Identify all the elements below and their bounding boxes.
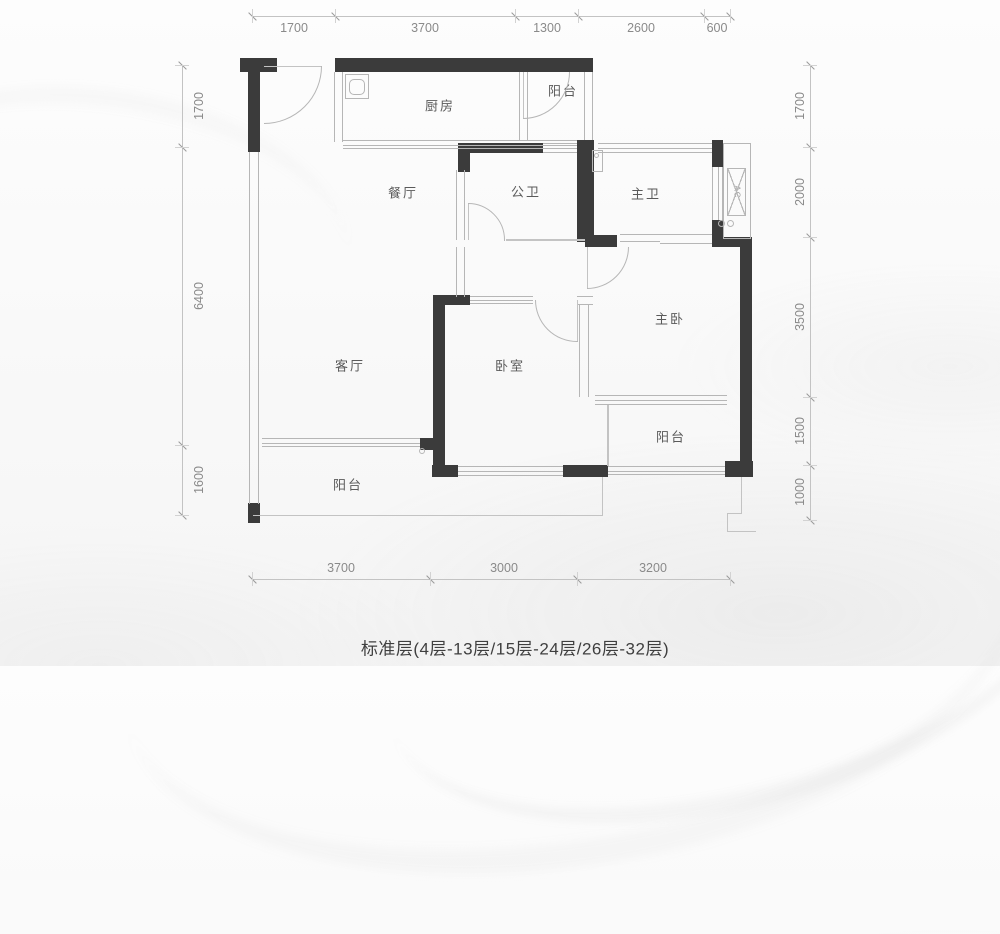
room-label-kitchen: 厨房 bbox=[425, 96, 455, 115]
kitchen-sink-basin bbox=[349, 79, 365, 95]
thin-wall bbox=[579, 305, 589, 397]
dim-extension bbox=[252, 572, 253, 586]
room-label-master-bath: 主卫 bbox=[631, 184, 661, 203]
dimension-line bbox=[810, 65, 811, 521]
outline-line bbox=[506, 239, 585, 241]
outline-line bbox=[607, 405, 609, 466]
door-arc-circle bbox=[535, 300, 578, 342]
dim-extension bbox=[730, 9, 731, 23]
door-arc-circle bbox=[523, 72, 570, 119]
wall-segment bbox=[335, 58, 593, 72]
thin-wall bbox=[584, 72, 593, 140]
window bbox=[595, 395, 727, 405]
dim-extension bbox=[803, 65, 817, 66]
room-label-balcony-right: 阳台 bbox=[656, 427, 686, 446]
room-label-bedroom: 卧室 bbox=[495, 356, 525, 375]
outline-line bbox=[741, 477, 742, 514]
door-arc-circle bbox=[264, 66, 322, 124]
dim-extension bbox=[803, 465, 817, 466]
fixture-circle bbox=[419, 448, 425, 454]
dimension-line bbox=[252, 579, 731, 580]
dim-extension bbox=[175, 147, 189, 148]
room-label-balcony-left: 阳台 bbox=[333, 475, 363, 494]
thin-wall bbox=[334, 72, 343, 142]
dim-right-2000: 2000 bbox=[793, 178, 807, 206]
dim-left-1700: 1700 bbox=[192, 92, 206, 120]
room-label-public-bath: 公卫 bbox=[511, 182, 541, 201]
dim-extension bbox=[252, 9, 253, 23]
thin-wall bbox=[456, 247, 465, 297]
dim-top-600: 600 bbox=[707, 21, 728, 35]
dim-right-3500: 3500 bbox=[793, 303, 807, 331]
outline-line bbox=[727, 513, 742, 514]
wall-segment bbox=[725, 461, 753, 477]
dim-bottom-3000: 3000 bbox=[490, 561, 518, 575]
dim-extension bbox=[175, 515, 189, 516]
door-swing-arc bbox=[468, 203, 506, 241]
thin-wall bbox=[620, 234, 660, 242]
dim-right-1700: 1700 bbox=[793, 92, 807, 120]
room-label-dining: 餐厅 bbox=[388, 183, 418, 202]
dim-extension bbox=[730, 572, 731, 586]
dimension-line bbox=[182, 65, 183, 516]
window bbox=[343, 140, 577, 149]
dim-top-1300: 1300 bbox=[533, 21, 561, 35]
window bbox=[543, 143, 577, 153]
dim-right-1500: 1500 bbox=[793, 417, 807, 445]
door-swing-arc bbox=[535, 300, 578, 343]
wall-segment bbox=[585, 235, 617, 247]
thin-wall bbox=[660, 234, 712, 244]
dim-bottom-3700: 3700 bbox=[327, 561, 355, 575]
room-label-living: 客厅 bbox=[335, 356, 365, 375]
thin-wall bbox=[249, 440, 259, 504]
window bbox=[458, 466, 563, 476]
dim-extension bbox=[430, 572, 431, 586]
outline-line bbox=[727, 513, 728, 532]
fixture-circle bbox=[594, 153, 599, 158]
dim-extension bbox=[577, 572, 578, 586]
wall-segment bbox=[712, 140, 723, 167]
floor-plan: 厨房 阳台 餐厅 公卫 主卫 主卧 客厅 卧室 阳台 阳台 AC 1700 37… bbox=[0, 0, 1000, 666]
dim-extension bbox=[704, 9, 705, 23]
dim-left-6400: 6400 bbox=[192, 282, 206, 310]
dim-extension bbox=[578, 9, 579, 23]
outline-line bbox=[602, 477, 603, 516]
thin-wall bbox=[456, 170, 465, 240]
fixture-circle bbox=[718, 220, 725, 227]
wall-segment bbox=[432, 465, 458, 477]
door-swing-arc bbox=[587, 247, 630, 290]
door-arc-circle bbox=[468, 203, 505, 241]
window bbox=[598, 143, 712, 153]
dim-top-3700: 3700 bbox=[411, 21, 439, 35]
dim-extension bbox=[175, 65, 189, 66]
window bbox=[712, 167, 723, 220]
dim-top-2600: 2600 bbox=[627, 21, 655, 35]
dim-extension bbox=[515, 9, 516, 23]
dim-extension bbox=[803, 237, 817, 238]
thin-wall bbox=[249, 152, 259, 440]
dim-extension bbox=[803, 147, 817, 148]
wall-segment bbox=[433, 295, 445, 477]
window bbox=[608, 466, 725, 475]
dim-left-1600: 1600 bbox=[192, 466, 206, 494]
wall-segment bbox=[740, 247, 752, 463]
dimension-line bbox=[252, 16, 731, 17]
outline-line bbox=[253, 515, 603, 516]
outline-line bbox=[727, 531, 756, 532]
thin-wall bbox=[577, 296, 593, 305]
dim-bottom-3200: 3200 bbox=[639, 561, 667, 575]
door-swing-arc bbox=[523, 72, 571, 120]
wall-segment bbox=[248, 503, 260, 523]
dim-extension bbox=[803, 397, 817, 398]
dim-right-1000: 1000 bbox=[793, 478, 807, 506]
dim-top-1700: 1700 bbox=[280, 21, 308, 35]
dim-extension bbox=[175, 445, 189, 446]
wall-segment bbox=[248, 70, 260, 152]
dim-extension bbox=[335, 9, 336, 23]
door-arc-circle bbox=[587, 247, 629, 289]
window bbox=[470, 296, 533, 304]
ac-unit bbox=[727, 168, 746, 216]
fixture-circle bbox=[727, 220, 734, 227]
floor-plan-caption: 标准层(4层-13层/15层-24层/26层-32层) bbox=[361, 635, 669, 660]
room-label-master-bedroom: 主卧 bbox=[655, 309, 685, 328]
window bbox=[262, 438, 420, 447]
wall-segment bbox=[458, 150, 470, 172]
wall-segment bbox=[563, 465, 608, 477]
door-swing-arc bbox=[264, 66, 323, 125]
dim-extension bbox=[803, 520, 817, 521]
